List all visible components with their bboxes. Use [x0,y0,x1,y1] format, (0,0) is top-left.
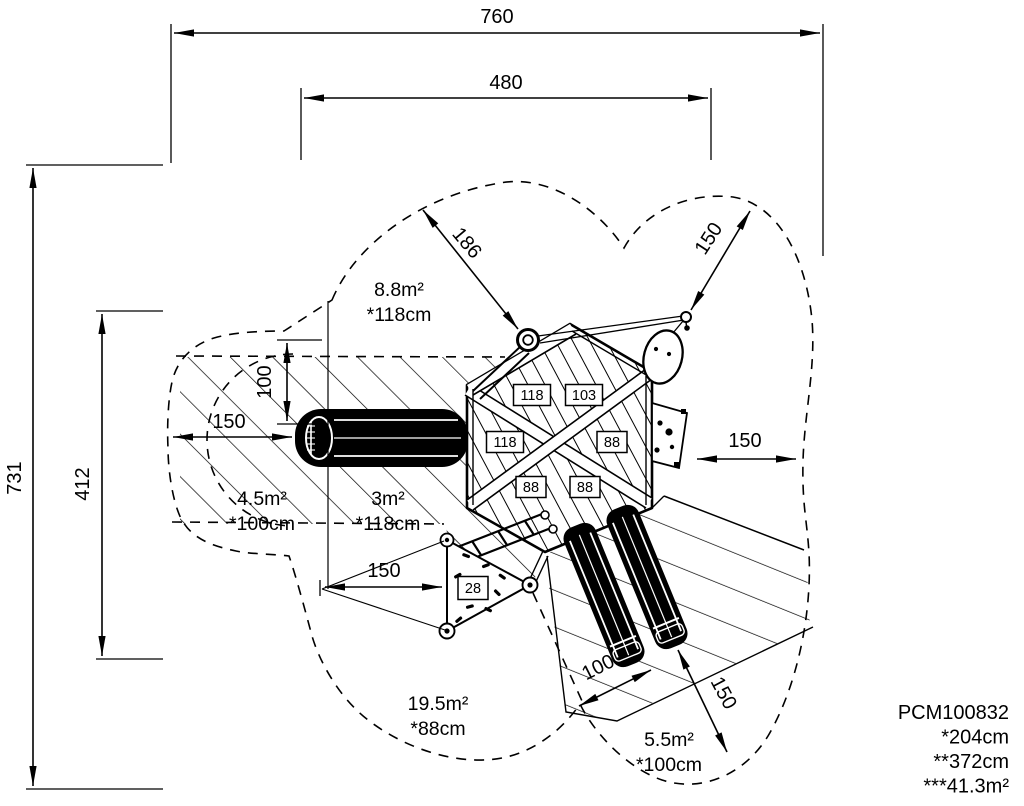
dim-150-slide-label: 150 [706,673,741,713]
swing-ring [518,330,539,351]
deck-label-118-a: 118 [520,388,543,404]
deck-label-88-a: 88 [604,435,620,451]
zone-slide-right-height-note: *100cm [636,754,702,776]
dim-760-label: 760 [480,6,513,28]
dim-150-top-right-label: 150 [691,219,728,259]
zone-tower-height-note: *118cm [356,513,421,535]
dim-731-label: 731 [4,461,26,494]
dim-186-label: 186 [447,223,485,263]
deck-label-103: 103 [572,388,596,404]
part-note-height: *204cm [941,727,1009,749]
part-note-area: ***41.3m² [923,776,1009,798]
dim-412-label: 412 [72,467,94,500]
zone-slide-right-area-label: 5.5m² [644,729,694,751]
dim-line-186 [423,210,518,329]
dim-480-label: 480 [489,72,522,94]
dim-100-left-label: 100 [254,365,276,398]
dim-150-right-label: 150 [728,430,761,452]
deck-label-28: 28 [465,581,481,597]
part-number: PCM100832 [898,702,1009,724]
deck-label-118-b: 118 [493,435,516,451]
zone-divider-top [176,356,505,357]
dim-line-150-top-right [691,211,750,310]
dim-150-bottom-label: 150 [367,560,400,582]
swing-hook [681,312,691,322]
part-note-width: **372cm [933,751,1009,773]
zone-slide-left-area-label: 4.5m² [237,488,287,510]
zone-lower-left-height-note: *88cm [410,718,465,740]
zone-swing-area-label: 8.8m² [374,279,424,301]
zone-swing-height-note: *118cm [367,304,432,326]
zone-tower-area-label: 3m² [371,488,405,510]
zone-lower-left-area-label: 19.5m² [408,693,469,715]
slide-left [295,409,468,467]
playground-plan-drawing: 7604807314121861501001501501501001508.8m… [0,0,1024,806]
zone-slide-left-height-note: *100cm [229,513,295,535]
deck-label-88-c: 88 [577,480,593,496]
dim-150-left-label: 150 [212,411,245,433]
climbing-panel-right [652,403,687,468]
technical-drawing-page: 7604807314121861501001501501501001508.8m… [0,0,1024,806]
deck-label-88-b: 88 [523,480,539,496]
